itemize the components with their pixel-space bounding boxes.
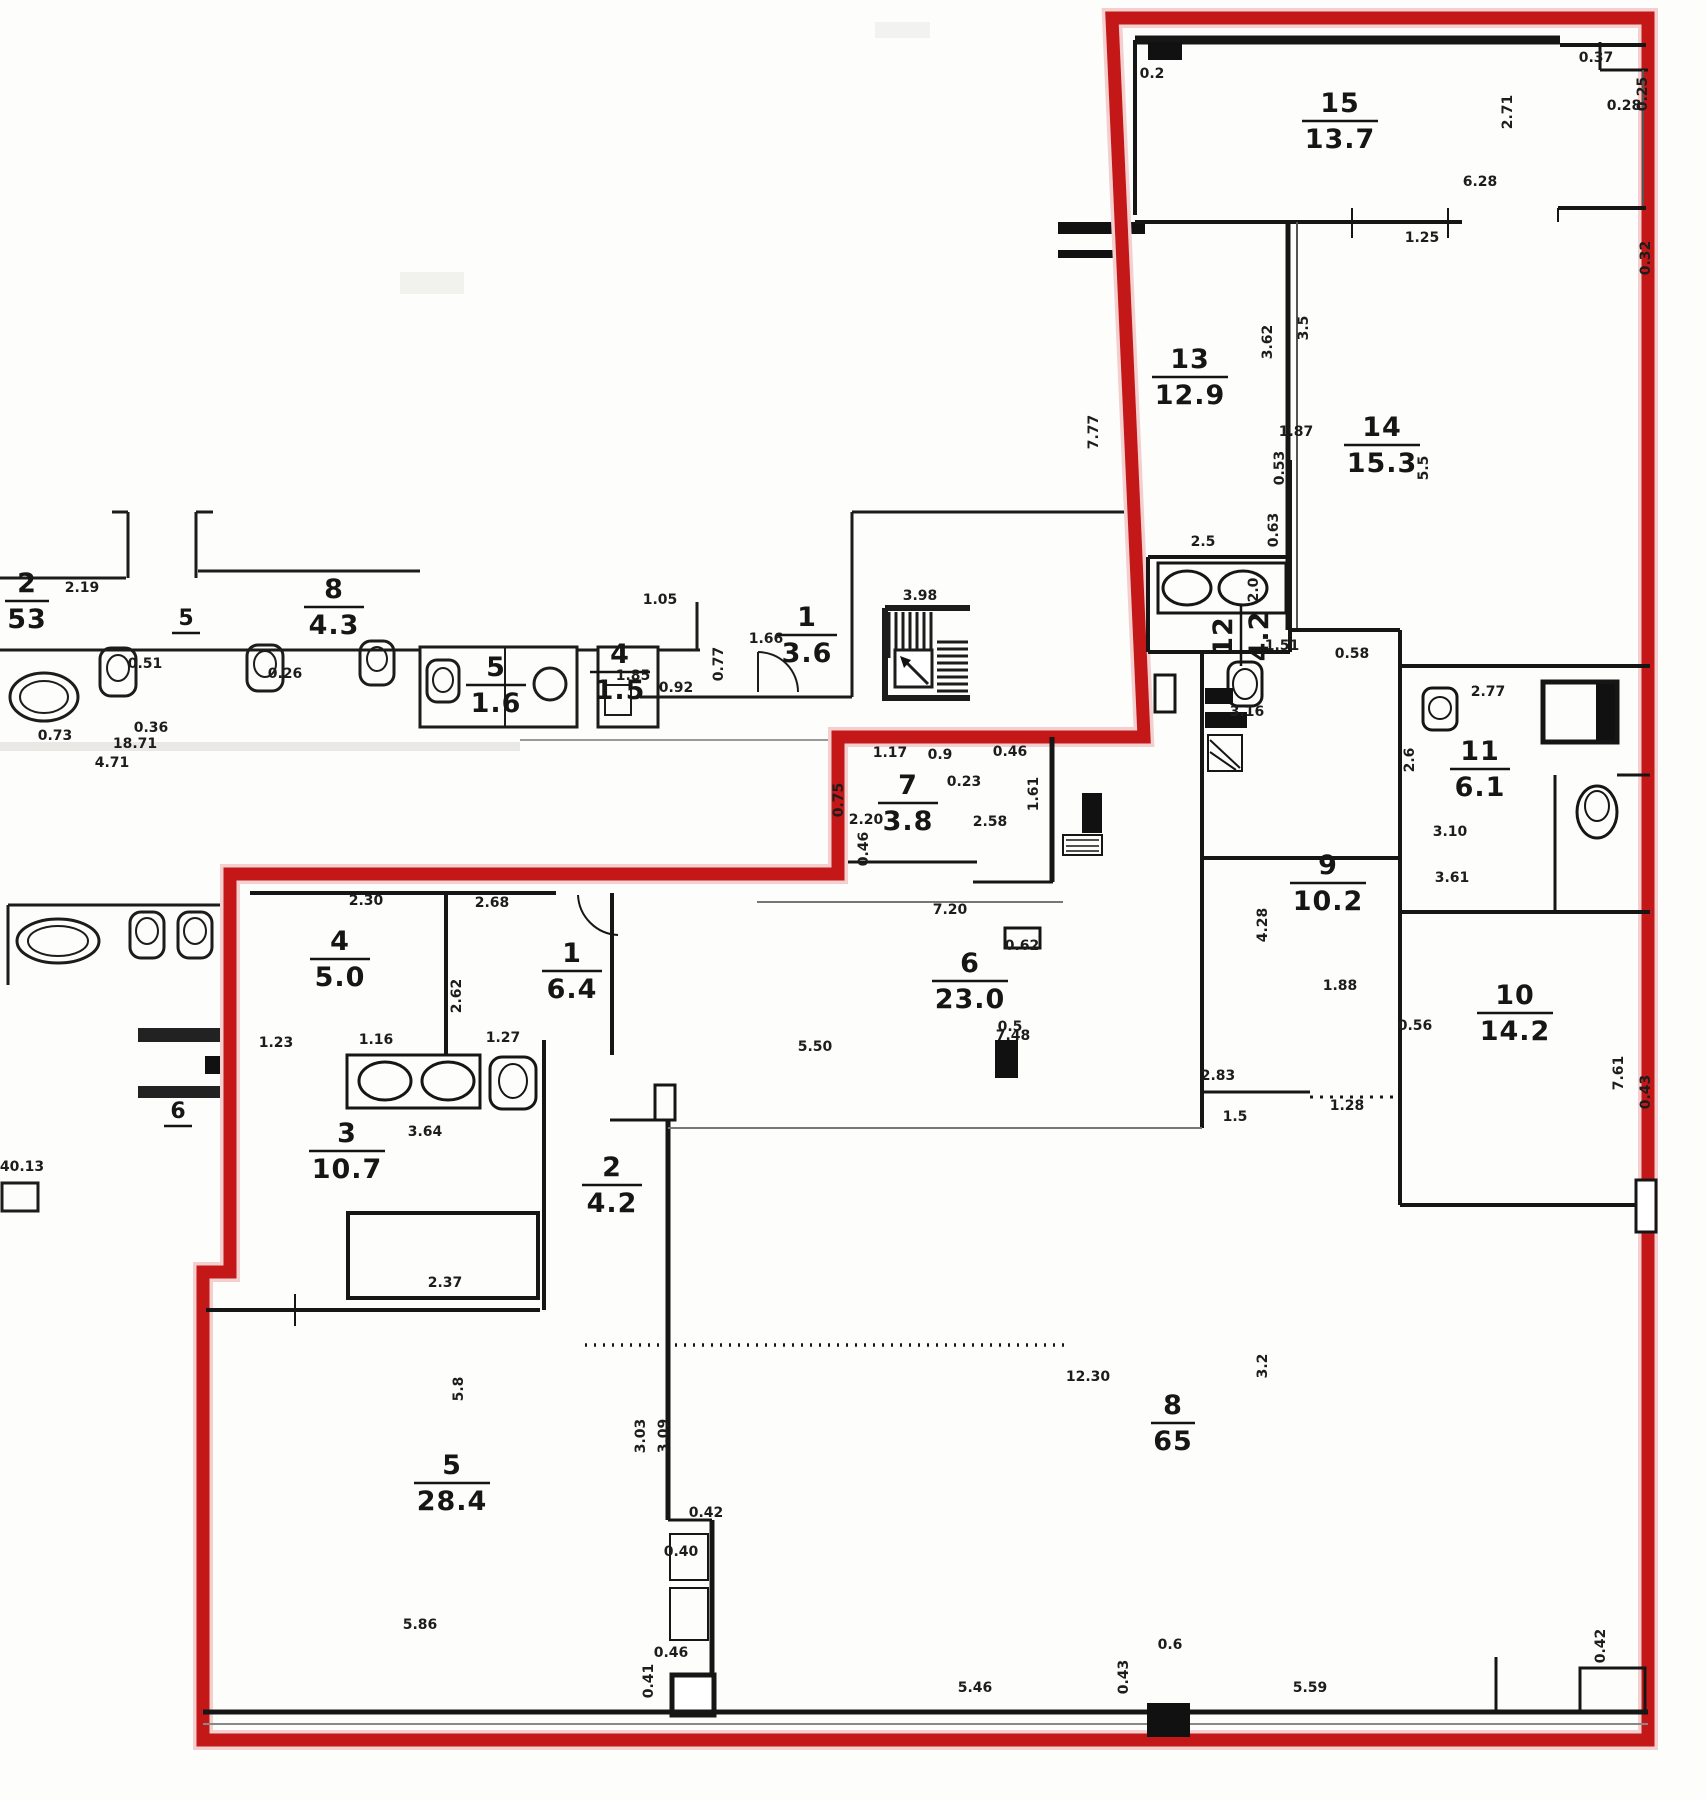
dimension-label: 2.77 bbox=[1471, 684, 1506, 700]
shaft-fill bbox=[1082, 793, 1102, 833]
small-label: 6 bbox=[170, 1099, 185, 1124]
dimension-label: 0.75 bbox=[831, 783, 847, 818]
dimension-label: 0.9 bbox=[928, 747, 953, 763]
small-label: 5 bbox=[178, 606, 193, 631]
room-2-area: 53 bbox=[7, 604, 47, 635]
shaft-fill bbox=[1596, 684, 1615, 740]
dimension-label: 2.37 bbox=[428, 1275, 463, 1291]
room-15-area: 13.7 bbox=[1305, 124, 1376, 155]
room-5-number: 5 bbox=[486, 652, 506, 683]
dimension-label: 7.61 bbox=[1611, 1056, 1627, 1091]
dimension-label: 0.51 bbox=[128, 656, 163, 672]
dimension-label: 1.5 bbox=[1223, 1109, 1248, 1125]
dimension-label: 12.30 bbox=[1066, 1369, 1111, 1385]
dimension-label: 1.88 bbox=[1323, 978, 1358, 994]
room-2-number: 2 bbox=[17, 568, 37, 599]
dimension-label: 0.6 bbox=[1158, 1637, 1183, 1653]
dimension-label: 3.10 bbox=[1433, 824, 1468, 840]
floor-plan-page: 1513.71312.91415.3124.2116.1910.21014.27… bbox=[0, 0, 1706, 1800]
room-1-area: 6.4 bbox=[547, 974, 598, 1005]
dimension-label: 7.20 bbox=[933, 902, 968, 918]
room-10-number: 10 bbox=[1495, 980, 1535, 1011]
door-block bbox=[1205, 688, 1233, 704]
window-stub bbox=[1636, 1180, 1656, 1232]
dimension-label: 0.26 bbox=[268, 666, 303, 682]
dimension-label: 1.05 bbox=[643, 592, 678, 608]
room-12-label-group: 4.2 bbox=[1241, 606, 1275, 666]
dimension-label: 3.62 bbox=[1260, 325, 1276, 360]
door-step-bar bbox=[138, 1086, 222, 1098]
dimension-label: 3.09 bbox=[656, 1419, 672, 1454]
dimension-label: 0.58 bbox=[1335, 646, 1370, 662]
dimension-label: 1.51 bbox=[1265, 638, 1300, 654]
room-8-area: 65 bbox=[1153, 1426, 1193, 1457]
dimension-label: 5.46 bbox=[958, 1680, 993, 1696]
wall-pier bbox=[1147, 1703, 1190, 1737]
dimension-label: 0.37 bbox=[1579, 50, 1614, 66]
dimension-label: 4.71 bbox=[95, 755, 130, 771]
room-1-area: 3.6 bbox=[782, 638, 833, 669]
room-8-number: 8 bbox=[324, 574, 344, 605]
dimension-label: 0.5 bbox=[998, 1019, 1023, 1035]
dimension-label: 2.0 bbox=[1246, 577, 1262, 602]
dimension-label: 2.71 bbox=[1500, 95, 1516, 130]
room-8-area: 4.3 bbox=[309, 610, 360, 641]
dimension-label: 5.59 bbox=[1293, 1680, 1328, 1696]
dimension-label: 18.71 bbox=[113, 736, 157, 752]
dimension-label: 5.8 bbox=[451, 1377, 467, 1402]
room-9-number: 9 bbox=[1318, 850, 1338, 881]
dimension-label: 0.77 bbox=[711, 647, 727, 682]
dimension-label: 0.28 bbox=[1607, 98, 1642, 114]
wall-hatch-block bbox=[1148, 42, 1182, 60]
dimension-label: 1.66 bbox=[749, 631, 784, 647]
dimension-label: 3.16 bbox=[1230, 704, 1265, 720]
dimension-label: 0.43 bbox=[1638, 1075, 1654, 1110]
dimension-label: 3.03 bbox=[633, 1419, 649, 1454]
dimension-label: 0.36 bbox=[134, 720, 169, 736]
room-4-area: 5.0 bbox=[315, 962, 366, 993]
dimension-label: 0.73 bbox=[38, 728, 73, 744]
dimension-label: 0.56 bbox=[1398, 1018, 1433, 1034]
dimension-label: 3.61 bbox=[1435, 870, 1470, 886]
dimension-label: 5.5 bbox=[1416, 456, 1432, 481]
dimension-label: 0.46 bbox=[856, 832, 872, 867]
dimension-label: 1.27 bbox=[486, 1030, 521, 1046]
door-block bbox=[995, 1040, 1018, 1078]
room-5-number: 5 bbox=[442, 1450, 462, 1481]
room-8-number: 8 bbox=[1163, 1390, 1183, 1421]
room-1-number: 1 bbox=[797, 602, 817, 633]
room-4-number: 4 bbox=[330, 926, 350, 957]
dimension-label: 0.40 bbox=[664, 1544, 699, 1560]
room-9-area: 10.2 bbox=[1293, 886, 1364, 917]
room-7-area: 3.8 bbox=[883, 806, 934, 837]
dimension-label: 0.92 bbox=[659, 680, 694, 696]
room-14-area: 15.3 bbox=[1347, 448, 1418, 479]
scan-smudge bbox=[400, 272, 464, 294]
scan-smudge bbox=[875, 22, 930, 38]
dimension-label: 0.2 bbox=[1140, 66, 1165, 82]
dimension-label: 2.83 bbox=[1201, 1068, 1236, 1084]
dimension-label: 2.19 bbox=[65, 580, 100, 596]
room-11-number: 11 bbox=[1460, 736, 1500, 767]
room-12-number: 12 bbox=[1208, 616, 1239, 656]
door-step-bar bbox=[138, 1028, 222, 1042]
dimension-label: 2.30 bbox=[349, 893, 384, 909]
dimension-label: 1.61 bbox=[1026, 777, 1042, 812]
dimension-label: 3.64 bbox=[408, 1124, 443, 1140]
column-box bbox=[672, 1675, 714, 1715]
dimension-label: 0.62 bbox=[1005, 938, 1040, 954]
dimension-label: 1.17 bbox=[873, 745, 908, 761]
dimension-label: 2.68 bbox=[475, 895, 510, 911]
dimension-label: 2.62 bbox=[449, 979, 465, 1014]
dimension-label: 1.25 bbox=[1405, 230, 1440, 246]
dimension-label: 0.46 bbox=[654, 1645, 689, 1661]
dimension-label: 0.42 bbox=[1593, 1629, 1609, 1664]
dimension-label: 7.77 bbox=[1086, 415, 1102, 450]
dimension-label: 3.98 bbox=[903, 588, 938, 604]
room-1-number: 1 bbox=[562, 938, 582, 969]
dimension-label: 1.16 bbox=[359, 1032, 394, 1048]
room-13-number: 13 bbox=[1170, 344, 1210, 375]
dimension-label: 3.2 bbox=[1255, 1354, 1271, 1379]
dimension-label: 0.32 bbox=[1638, 241, 1654, 276]
dimension-label: 0.41 bbox=[641, 1664, 657, 1699]
dimension-label: 0.43 bbox=[1116, 1660, 1132, 1695]
room-5-area: 28.4 bbox=[417, 1486, 488, 1517]
dimension-label: 1.85 bbox=[616, 668, 651, 684]
room-6-area: 23.0 bbox=[935, 984, 1006, 1015]
dimension-label: 0.42 bbox=[689, 1505, 724, 1521]
dimension-label: 0.53 bbox=[1272, 451, 1288, 486]
dimension-label: 0.23 bbox=[947, 774, 982, 790]
room-15-number: 15 bbox=[1320, 88, 1360, 119]
dimension-label: 3.5 bbox=[1296, 316, 1312, 341]
dimension-label: 6.28 bbox=[1463, 174, 1498, 190]
room-10-area: 14.2 bbox=[1480, 1016, 1551, 1047]
wall-bar bbox=[1058, 222, 1145, 234]
dimension-label: 5.50 bbox=[798, 1039, 833, 1055]
dimension-label: 0.63 bbox=[1266, 513, 1282, 548]
dimension-label: 1.28 bbox=[1330, 1098, 1365, 1114]
corridor-dimension-band bbox=[0, 742, 520, 751]
dimension-label: 2.58 bbox=[973, 814, 1008, 830]
dimension-label: 40.13 bbox=[0, 1159, 44, 1175]
room-5-area: 1.6 bbox=[471, 688, 522, 719]
room-2-area: 4.2 bbox=[587, 1188, 638, 1219]
dimension-label: 4.28 bbox=[1255, 908, 1271, 943]
room-4-number: 4 bbox=[610, 639, 630, 670]
room-6-number: 6 bbox=[960, 948, 980, 979]
paper-background bbox=[0, 0, 1706, 1800]
room-3-area: 10.7 bbox=[312, 1154, 383, 1185]
dimension-label: 0.46 bbox=[993, 744, 1028, 760]
room-14-number: 14 bbox=[1362, 412, 1402, 443]
room-7-number: 7 bbox=[898, 770, 918, 801]
dimension-label: 2.6 bbox=[1402, 748, 1418, 773]
room-2-number: 2 bbox=[602, 1152, 622, 1183]
dimension-label: 1.87 bbox=[1279, 424, 1314, 440]
dimension-label: 2.5 bbox=[1191, 534, 1216, 550]
room-3-number: 3 bbox=[337, 1118, 357, 1149]
dimension-label: 2.20 bbox=[849, 812, 884, 828]
floor-plan-canvas: 1513.71312.91415.3124.2116.1910.21014.27… bbox=[0, 0, 1706, 1800]
dimension-label: 5.86 bbox=[403, 1617, 438, 1633]
room-11-area: 6.1 bbox=[1455, 772, 1506, 803]
dimension-label: 1.23 bbox=[259, 1035, 294, 1051]
room-13-area: 12.9 bbox=[1155, 380, 1226, 411]
